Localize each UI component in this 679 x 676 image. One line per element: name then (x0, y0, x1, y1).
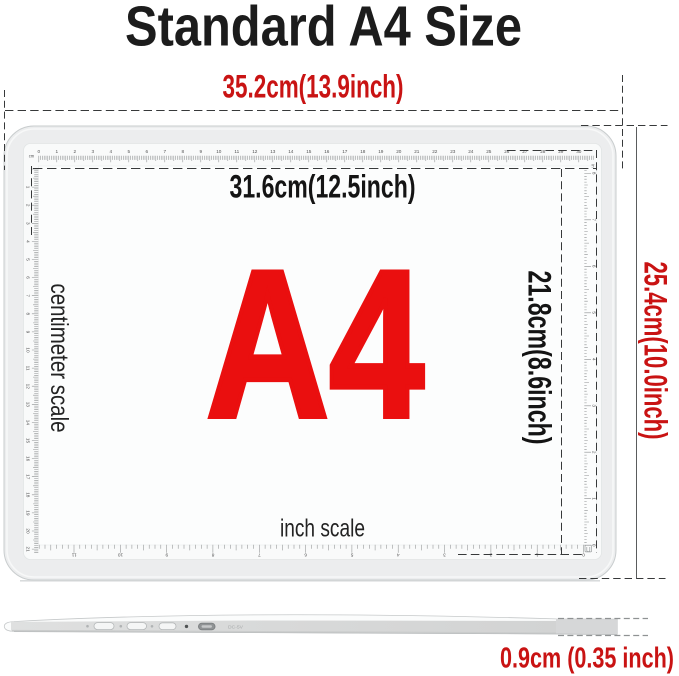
svg-text:2: 2 (73, 149, 76, 154)
svg-text:10: 10 (118, 553, 124, 558)
svg-text:21: 21 (26, 546, 31, 552)
svg-text:12: 12 (26, 384, 31, 390)
svg-text:25: 25 (486, 149, 492, 154)
svg-text:cm: cm (29, 154, 35, 159)
svg-text:1: 1 (26, 186, 31, 189)
svg-text:2: 2 (592, 451, 597, 454)
svg-text:7: 7 (258, 553, 261, 558)
svg-text:14: 14 (26, 420, 31, 426)
svg-text:16: 16 (26, 456, 31, 462)
svg-text:19: 19 (26, 510, 31, 516)
svg-text:26: 26 (504, 149, 510, 154)
svg-text:4: 4 (26, 240, 31, 243)
svg-text:10: 10 (26, 347, 31, 353)
svg-text:3: 3 (26, 222, 31, 225)
svg-text:23: 23 (450, 149, 456, 154)
svg-text:0: 0 (582, 553, 585, 558)
svg-text:24: 24 (468, 149, 474, 154)
svg-text:centimeter scale: centimeter scale (45, 284, 73, 433)
svg-text:6: 6 (304, 553, 307, 558)
svg-text:20: 20 (26, 528, 31, 534)
svg-text:DC-5V: DC-5V (228, 625, 244, 631)
svg-text:29: 29 (558, 149, 564, 154)
svg-text:3: 3 (592, 404, 597, 407)
svg-text:22: 22 (432, 149, 438, 154)
svg-text:0: 0 (37, 149, 40, 154)
svg-text:0.9cm (0.35 inch): 0.9cm (0.35 inch) (500, 643, 674, 675)
svg-text:20: 20 (396, 149, 402, 154)
svg-text:17: 17 (342, 149, 348, 154)
svg-text:31.6cm(12.5inch): 31.6cm(12.5inch) (230, 169, 416, 205)
svg-text:12: 12 (252, 149, 258, 154)
svg-text:4: 4 (592, 358, 597, 361)
svg-text:5: 5 (350, 553, 353, 558)
svg-text:6: 6 (145, 149, 148, 154)
svg-text:5: 5 (26, 258, 31, 261)
svg-text:2: 2 (26, 204, 31, 207)
svg-text:16: 16 (324, 149, 330, 154)
svg-text:11: 11 (234, 149, 239, 154)
svg-text:9: 9 (199, 149, 202, 154)
svg-text:6: 6 (592, 265, 597, 268)
svg-text:6: 6 (26, 276, 31, 279)
svg-text:19: 19 (378, 149, 384, 154)
svg-text:28: 28 (540, 149, 546, 154)
svg-text:3: 3 (443, 553, 446, 558)
svg-text:13: 13 (26, 402, 31, 408)
svg-text:0: 0 (592, 544, 597, 547)
svg-text:4: 4 (397, 553, 400, 558)
svg-text:7: 7 (26, 294, 31, 297)
svg-text:27: 27 (522, 149, 528, 154)
svg-text:25.4cm(10.0inch): 25.4cm(10.0inch) (638, 262, 674, 440)
svg-text:11: 11 (26, 366, 31, 371)
svg-text:35.2cm(13.9inch): 35.2cm(13.9inch) (223, 69, 404, 105)
svg-text:4: 4 (109, 149, 112, 154)
svg-text:8: 8 (26, 312, 31, 315)
svg-text:14: 14 (288, 149, 294, 154)
svg-text:3: 3 (91, 149, 94, 154)
svg-text:9: 9 (165, 553, 168, 558)
svg-text:5: 5 (127, 149, 130, 154)
svg-text:17: 17 (26, 474, 31, 480)
svg-text:13: 13 (270, 149, 276, 154)
svg-text:9: 9 (26, 331, 31, 334)
svg-text:21.8cm(8.6inch): 21.8cm(8.6inch) (522, 271, 558, 445)
svg-text:18: 18 (360, 149, 366, 154)
svg-text:15: 15 (26, 438, 31, 444)
svg-text:7: 7 (163, 149, 166, 154)
svg-text:8: 8 (592, 172, 597, 175)
svg-text:inch scale: inch scale (280, 515, 365, 543)
svg-text:30: 30 (576, 149, 582, 154)
svg-text:5: 5 (592, 311, 597, 314)
svg-text:8: 8 (211, 553, 214, 558)
svg-text:21: 21 (414, 149, 420, 154)
svg-text:1: 1 (55, 149, 58, 154)
svg-text:10: 10 (216, 149, 222, 154)
svg-text:A4: A4 (206, 227, 424, 462)
svg-text:18: 18 (26, 492, 31, 498)
svg-text:15: 15 (306, 149, 312, 154)
svg-text:1: 1 (592, 497, 597, 500)
svg-text:7: 7 (592, 218, 597, 221)
svg-text:11: 11 (71, 553, 76, 558)
svg-text:Standard A4 Size: Standard A4 Size (125, 0, 522, 59)
svg-text:8: 8 (181, 149, 184, 154)
